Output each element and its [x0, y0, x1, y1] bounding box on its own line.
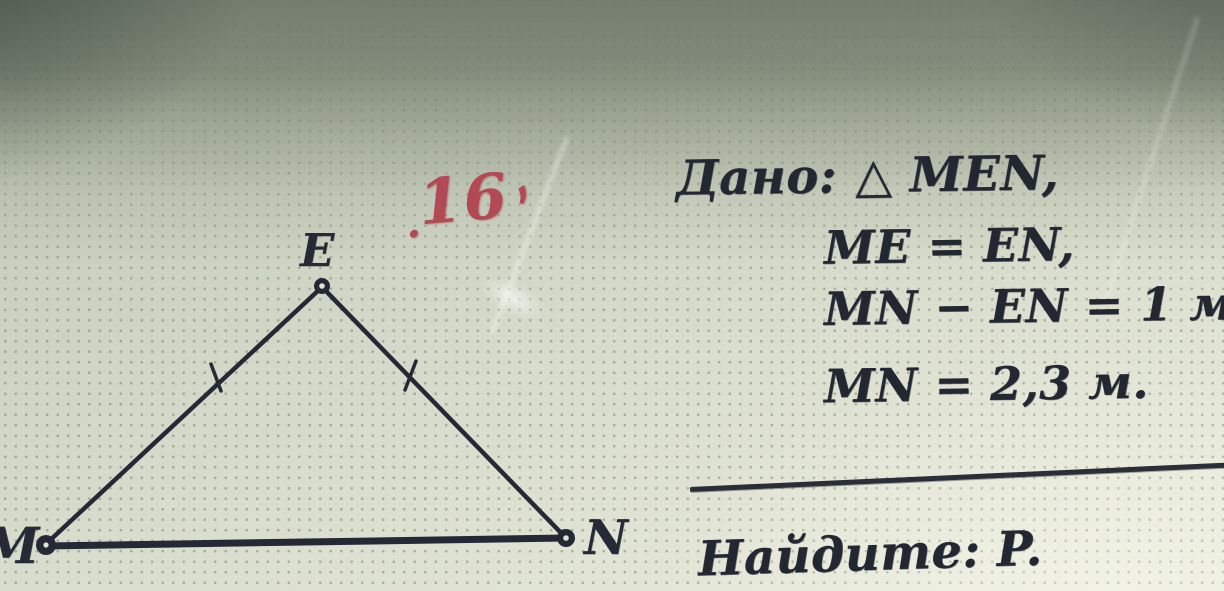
triangle-side-mn	[46, 538, 566, 546]
given-line-3: MN − EN = 1 м,	[824, 276, 1224, 336]
given-line-4: MN = 2,3 м.	[824, 355, 1150, 414]
vertex-dot-e-hole	[319, 283, 325, 289]
notebook-photo-page: E M N .16, Дано:△ MEN, ME = EN, MN − EN …	[0, 0, 1224, 591]
triangle-side-me	[46, 288, 321, 544]
vertex-label-e: E	[300, 224, 334, 277]
find-line: Найдите:P.	[697, 521, 1043, 588]
vertex-dot-m-hole	[43, 542, 48, 547]
vertex-label-m: M	[0, 516, 39, 575]
given-line-1: Дано:△ MEN,	[676, 145, 1060, 206]
find-label: Найдите:	[697, 523, 981, 588]
given-label: Дано:	[676, 148, 838, 206]
given-line-2: ME = EN,	[824, 217, 1075, 274]
triangle-side-en	[323, 288, 565, 537]
vertex-label-n: N	[584, 510, 628, 566]
problem-number-annotation: .16,	[401, 156, 539, 247]
given-item-triangle: △ MEN,	[855, 145, 1060, 204]
find-value: P.	[996, 521, 1044, 578]
vertex-dot-n-hole	[563, 535, 569, 541]
